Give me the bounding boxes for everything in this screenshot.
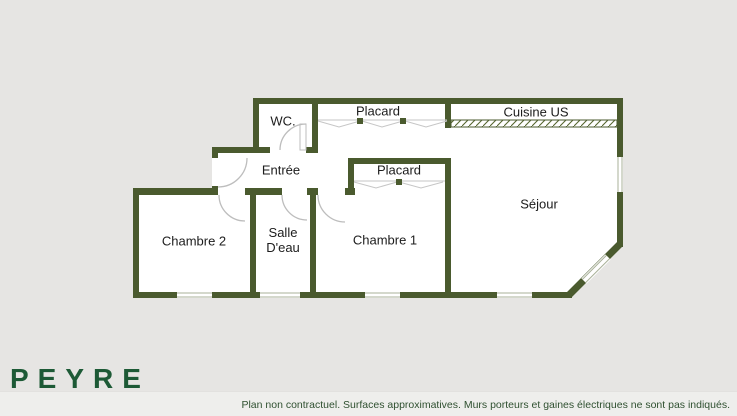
kitchen-counter <box>451 120 617 127</box>
wall-segment <box>253 98 623 104</box>
wall-segment <box>253 98 259 153</box>
room-label-chambre1: Chambre 1 <box>353 233 417 248</box>
floor-plan-page: WC. Placard Cuisine US Entrée Placard Sé… <box>0 0 737 416</box>
window-salle-deau <box>260 292 300 298</box>
window-sejour-south <box>497 292 532 298</box>
wall-segment <box>617 192 623 247</box>
room-label-wc: WC. <box>270 114 295 129</box>
wall-segment <box>312 98 318 153</box>
window-sejour-east <box>617 157 623 192</box>
wall-segment <box>445 158 451 298</box>
room-label-placard-hall: Placard <box>356 104 400 119</box>
wall-segment <box>306 147 318 153</box>
plan-disclaimer: Plan non contractuel. Surfaces approxima… <box>241 399 730 411</box>
room-label-chambre2: Chambre 2 <box>162 234 226 249</box>
room-label-entree: Entrée <box>262 163 300 178</box>
wall-segment <box>133 188 139 298</box>
wall-segment <box>245 188 282 195</box>
footer-strip: Plan non contractuel. Surfaces approxima… <box>0 391 737 416</box>
room-label-cuisine: Cuisine US <box>503 105 568 120</box>
room-label-placard-chambre1: Placard <box>377 163 421 178</box>
window-chambre1 <box>365 292 400 298</box>
wall-segment <box>310 195 316 292</box>
wall-segment <box>212 147 218 158</box>
wall-segment <box>445 98 451 128</box>
wall-segment <box>307 188 318 195</box>
door-leaf-wc <box>300 124 306 150</box>
wall-segment <box>250 195 256 292</box>
logo-wordmark: PEYRE <box>10 364 150 394</box>
wall-segment <box>133 188 218 195</box>
room-label-salle-deau: Salle D'eau <box>259 225 307 255</box>
wall-segment <box>617 98 623 157</box>
room-label-sejour: Séjour <box>520 197 558 212</box>
window-chambre2 <box>177 292 212 298</box>
floor-plan-drawing <box>0 0 737 416</box>
wall-segment <box>212 147 270 153</box>
